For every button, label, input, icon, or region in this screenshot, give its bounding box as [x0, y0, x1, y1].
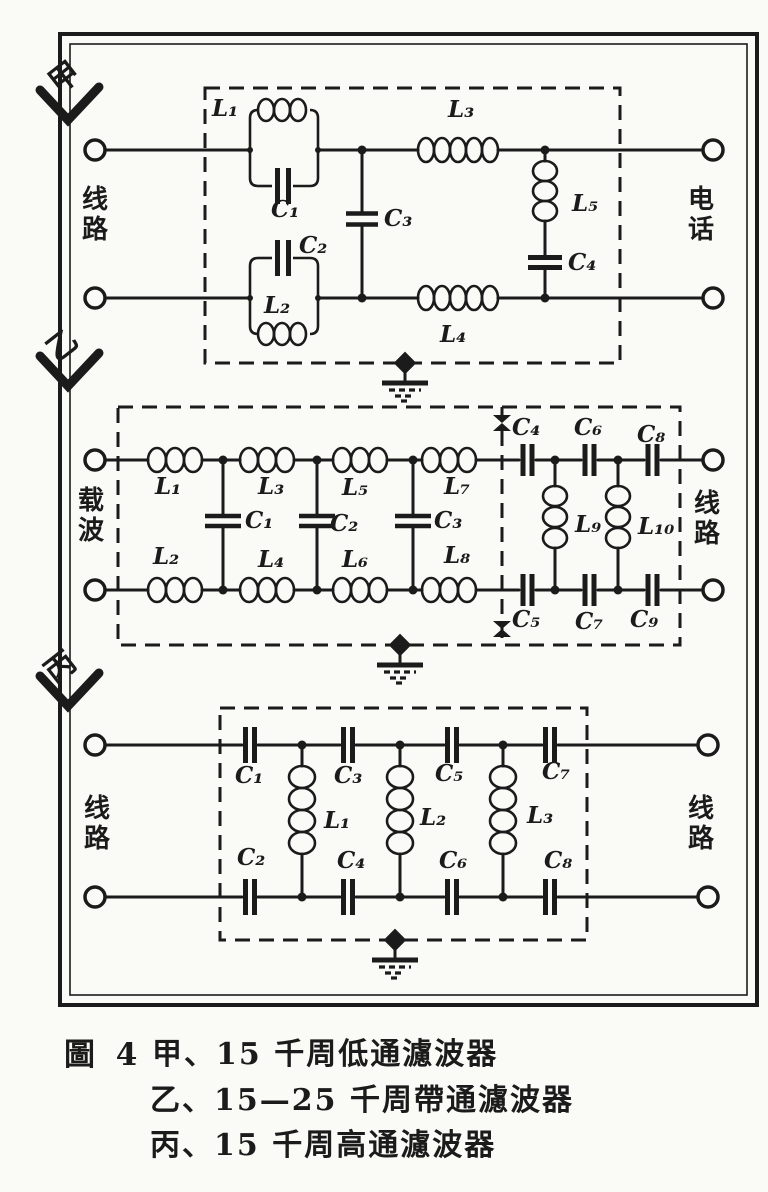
- label-yi-C8: C₈: [637, 423, 665, 446]
- terminal-icon: [703, 288, 723, 308]
- terminal-icon: [85, 887, 105, 907]
- label-yi-L10: L₁₀: [638, 515, 674, 538]
- inductor-L3: [418, 138, 498, 162]
- circuit-yi-bandpass: [85, 407, 723, 683]
- terminal-icon: [85, 140, 105, 160]
- label-bing-C1: C₁: [235, 764, 263, 787]
- terminal-icon: [698, 887, 718, 907]
- label-yi-C9: C₉: [630, 608, 658, 631]
- label-bing-L1: L₁: [324, 809, 350, 832]
- label-bing-C4: C₄: [337, 849, 365, 872]
- label-yi-C6: C₆: [574, 416, 602, 439]
- label-jia-C1: C₁: [271, 198, 299, 221]
- label-jia-L4: L₄: [440, 323, 466, 346]
- label-yi-L8: L₈: [444, 544, 470, 567]
- label-jia-L3: L₃: [448, 98, 474, 121]
- caption-line-1: 甲、15 千周低通濾波器: [152, 1040, 498, 1070]
- label-yi-C4: C₄: [512, 416, 540, 439]
- label-yi-L7: L₇: [444, 475, 470, 498]
- terminal-icon: [703, 580, 723, 600]
- ground-icon: [377, 634, 423, 683]
- label-jia-L5: L₅: [572, 192, 598, 215]
- label-yi-L2: L₂: [153, 545, 179, 568]
- circuit-bing-highpass: [85, 708, 718, 978]
- port-label-right-yi: 线路: [690, 490, 724, 550]
- label-jia-L1: L₁: [212, 97, 238, 120]
- label-bing-C3: C₃: [334, 764, 362, 787]
- ground-icon: [372, 929, 418, 978]
- label-bing-L3: L₃: [527, 804, 553, 827]
- port-label-right-bing: 线路: [684, 795, 718, 855]
- label-yi-L4: L₄: [258, 548, 284, 571]
- caption-line-2: 乙、15—25 千周帶通濾波器: [150, 1086, 574, 1116]
- inductor-L3-bing: [490, 745, 516, 897]
- label-yi-L3: L₃: [258, 475, 284, 498]
- label-jia-C4: C₄: [568, 251, 596, 274]
- label-yi-C5: C₅: [512, 608, 540, 631]
- crossover-mark-icon: [493, 415, 511, 431]
- label-jia-C2: C₂: [299, 234, 327, 257]
- schematic-layer: [0, 0, 768, 1192]
- label-jia-L2: L₂: [264, 294, 290, 317]
- inductor-L1-bing: [289, 745, 315, 897]
- terminal-icon: [85, 735, 105, 755]
- capacitor-C3: [346, 150, 378, 298]
- port-label-left-bing: 线路: [80, 795, 114, 855]
- label-bing-C8: C₈: [544, 849, 572, 872]
- inductor-L2-bing: [387, 745, 413, 897]
- label-bing-C2: C₂: [237, 846, 265, 869]
- terminal-icon: [703, 450, 723, 470]
- inductor-L4: [418, 286, 498, 310]
- port-label-right-jia: 电话: [684, 186, 718, 246]
- port-label-left-jia: 线路: [78, 186, 112, 246]
- scanned-figure-page: 甲 乙 丙 线路 电话 载波 线路 线路 线路 L₁ C₁ C₂ L₂ C₃ L…: [0, 0, 768, 1192]
- circuit-jia-lowpass: [85, 88, 723, 401]
- label-yi-L6: L₆: [342, 548, 368, 571]
- shunt-capacitors-yi: [205, 460, 431, 590]
- branch-L5-C4: [528, 150, 562, 298]
- label-bing-C7: C₇: [542, 760, 570, 783]
- label-jia-C3: C₃: [384, 207, 412, 230]
- figure-number: 圖 4: [64, 1040, 142, 1071]
- crossover-mark-icon: [493, 621, 511, 637]
- label-bing-L2: L₂: [420, 806, 446, 829]
- inductor-L9: [543, 460, 567, 590]
- label-yi-L9: L₉: [575, 513, 601, 536]
- label-yi-C7: C₇: [575, 610, 603, 633]
- label-bing-C6: C₆: [439, 849, 467, 872]
- label-yi-L5: L₅: [342, 476, 368, 499]
- terminal-icon: [698, 735, 718, 755]
- label-yi-C2: C₂: [330, 512, 358, 535]
- inductor-L10: [606, 460, 630, 590]
- label-yi-C3: C₃: [434, 509, 462, 532]
- tank-L1-C1: [250, 99, 318, 204]
- label-yi-L1: L₁: [155, 475, 181, 498]
- terminal-icon: [85, 288, 105, 308]
- terminal-icon: [85, 580, 105, 600]
- caption-line-3: 丙、15 千周高通濾波器: [150, 1131, 496, 1161]
- port-label-left-yi: 载波: [74, 487, 108, 547]
- label-yi-C1: C₁: [245, 509, 273, 532]
- terminal-icon: [85, 450, 105, 470]
- label-bing-C5: C₅: [435, 762, 463, 785]
- ground-icon: [382, 352, 428, 401]
- terminal-icon: [703, 140, 723, 160]
